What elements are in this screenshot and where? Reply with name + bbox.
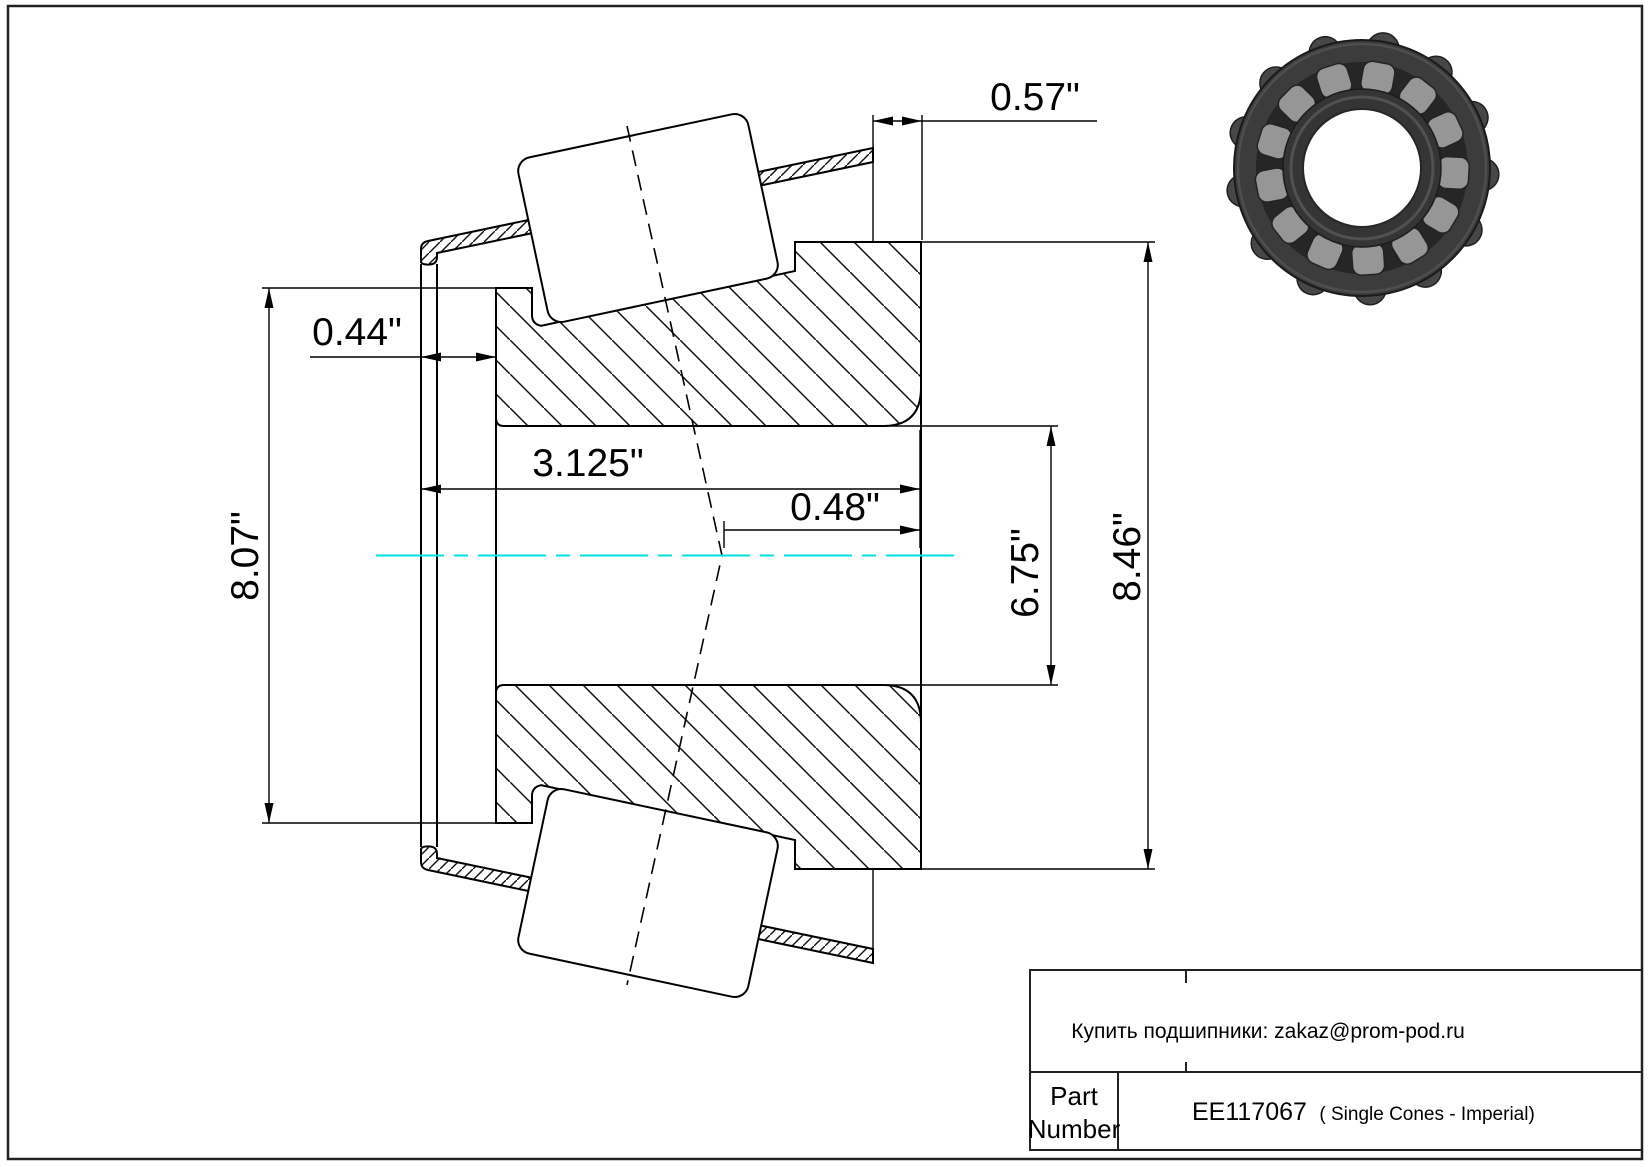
title-block: Купить подшипники: zakaz@prom-pod.ru Par…	[1028, 970, 1642, 1150]
drawing-canvas: 0.57" 0.44" 3.125" 0.48" 8.07" 6.75" 8.4…	[0, 0, 1649, 1167]
part-label-line1: Part	[1050, 1081, 1098, 1111]
contact-text: Купить подшипники: zakaz@prom-pod.ru	[1071, 1020, 1465, 1043]
part-number-value: EE117067 ( Single Cones - Imperial)	[1192, 1098, 1535, 1126]
bearing-photo	[1224, 30, 1499, 305]
part-number-label: Part Number	[1028, 1081, 1121, 1144]
dim-front-rib-diameter: 8.07"	[224, 511, 267, 601]
part-number: EE117067	[1192, 1098, 1307, 1126]
dim-back-face-to-cage: 0.57"	[990, 76, 1080, 119]
part-label-line2: Number	[1028, 1114, 1121, 1144]
bearing-bore	[1303, 109, 1421, 227]
drawing-page: 0.57" 0.44" 3.125" 0.48" 8.07" 6.75" 8.4…	[0, 0, 1649, 1167]
dim-effective-center-offset: 0.48"	[790, 486, 880, 529]
cone-cross-section	[376, 111, 962, 999]
dim-cage-to-front-face: 0.44"	[312, 311, 402, 354]
dim-cone-width: 3.125"	[532, 442, 643, 485]
dim-cage-outer-diameter: 8.46"	[1106, 512, 1149, 602]
dim-bore-diameter: 6.75"	[1004, 528, 1047, 618]
part-type: ( Single Cones - Imperial)	[1319, 1104, 1534, 1125]
